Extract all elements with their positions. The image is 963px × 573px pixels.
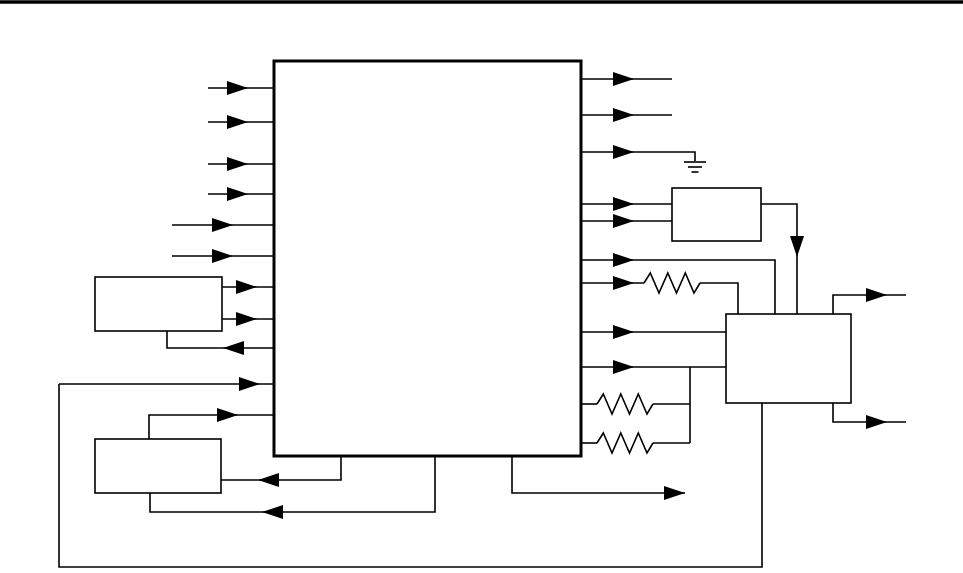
input-3-arrow xyxy=(227,157,248,171)
output-9-arrow xyxy=(613,360,634,374)
bottom-output-wire xyxy=(512,456,685,493)
output-8-arrow xyxy=(613,325,634,339)
bottom-output-arrow xyxy=(664,486,685,500)
schematic-page xyxy=(0,0,963,573)
upper-right-out-wire xyxy=(761,204,797,314)
resistor-bot xyxy=(597,433,653,453)
lower-left-return-a-arrow xyxy=(258,473,279,487)
resistor-top xyxy=(644,273,700,293)
right-block-out-bottom-arrow xyxy=(866,415,887,429)
output-7-lead-out-wire xyxy=(700,283,738,314)
input-1-arrow xyxy=(227,81,248,95)
output-1-arrow xyxy=(613,72,634,86)
right-block xyxy=(726,314,851,403)
input-2-arrow xyxy=(227,115,248,129)
output-7-arrow xyxy=(613,276,634,290)
upper-left-out-b-arrow xyxy=(236,312,257,326)
main-block xyxy=(274,61,581,456)
upper-left-out-a-arrow xyxy=(236,280,257,294)
output-6-wire xyxy=(581,260,775,314)
upper-left-return-arrow xyxy=(223,341,244,355)
output-6-arrow xyxy=(613,253,634,267)
output-4-arrow xyxy=(613,197,634,211)
upper-left-block xyxy=(95,277,222,331)
output-2-arrow xyxy=(613,108,634,122)
output-5-arrow xyxy=(613,214,634,228)
lower-left-in-wire xyxy=(149,415,274,439)
input-5-arrow xyxy=(212,218,233,232)
input-4-arrow xyxy=(227,187,248,201)
output-3-arrow xyxy=(613,145,634,159)
lower-left-return-b-arrow xyxy=(262,505,283,519)
upper-right-out-arrow xyxy=(790,236,804,257)
lower-left-block xyxy=(95,439,221,493)
lower-left-in-arrow xyxy=(217,408,238,422)
upper-left-return-wire xyxy=(167,331,274,348)
output-3-ground-wire xyxy=(581,152,695,161)
lower-left-return-a-wire xyxy=(221,456,341,480)
right-block-out-top-arrow xyxy=(866,288,887,302)
block-diagram-svg xyxy=(0,0,963,573)
resistor-mid xyxy=(597,394,653,414)
feedback-input-arrow xyxy=(239,377,260,391)
upper-right-block xyxy=(672,188,761,241)
input-6-arrow xyxy=(212,249,233,263)
